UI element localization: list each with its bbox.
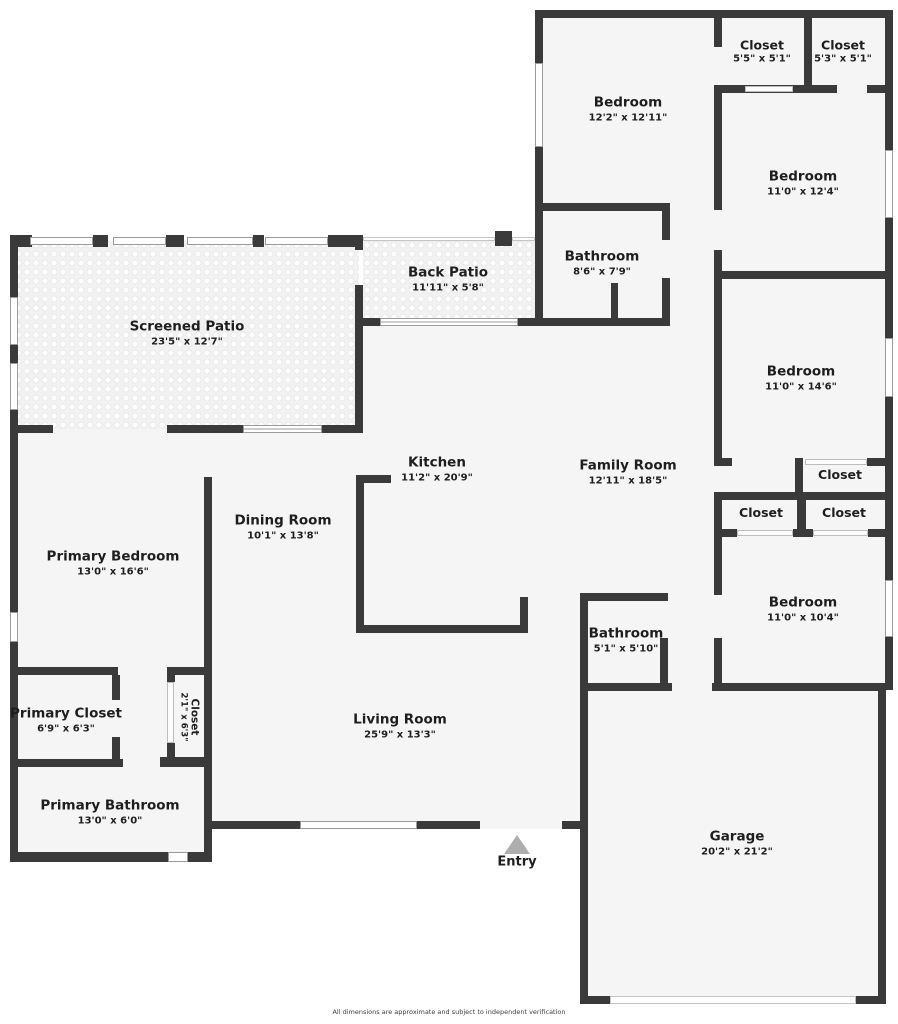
wall-segment bbox=[714, 638, 722, 686]
wall-segment bbox=[804, 10, 812, 88]
wall-segment bbox=[714, 458, 732, 466]
room-label-bedroom-right-3: Bedroom11'0" x 10'4" bbox=[767, 596, 839, 625]
wall-segment bbox=[885, 10, 893, 150]
patio-edge-line bbox=[363, 237, 495, 241]
wall-segment bbox=[562, 821, 583, 829]
wall-segment bbox=[867, 458, 893, 466]
wall-segment bbox=[868, 529, 893, 537]
room-label-closet-mid-top: Closet bbox=[818, 468, 862, 482]
patio-post bbox=[166, 235, 184, 247]
wall-segment bbox=[535, 10, 543, 63]
wall-segment bbox=[417, 821, 480, 829]
room-label-closet-top-2: Closet5'3" x 5'1" bbox=[814, 38, 872, 65]
room-label-screened-patio: Screened Patio23'5" x 12'7" bbox=[130, 320, 245, 349]
wall-segment bbox=[212, 821, 300, 829]
patio-post bbox=[10, 235, 32, 247]
room-label-primary-bathroom: Primary Bathroom13'0" x 6'0" bbox=[40, 799, 179, 828]
floor-kitchen-family bbox=[359, 322, 718, 429]
wall-segment bbox=[867, 85, 893, 93]
closet-door bbox=[745, 86, 793, 92]
screen-panel bbox=[265, 237, 328, 245]
wall-segment bbox=[518, 318, 670, 326]
room-label-bedroom-right-1: Bedroom11'0" x 12'4" bbox=[767, 170, 839, 199]
wall-segment bbox=[167, 675, 175, 682]
disclaimer-text: All dimensions are approximate and subje… bbox=[0, 1008, 898, 1016]
room-label-bedroom-right-2: Bedroom11'0" x 14'6" bbox=[765, 365, 837, 394]
sliding-door bbox=[243, 425, 322, 433]
wall-segment bbox=[322, 425, 363, 433]
screen-panel bbox=[187, 237, 253, 245]
wall-segment bbox=[722, 271, 893, 279]
room-label-bathroom-main: Bathroom8'6" x 7'9" bbox=[565, 250, 640, 279]
wall-segment bbox=[355, 237, 363, 250]
sliding-door bbox=[380, 318, 518, 326]
screen-panel bbox=[30, 237, 93, 245]
patio-edge-line bbox=[512, 237, 535, 241]
room-label-back-patio: Back Patio11'11" x 5'8" bbox=[408, 266, 488, 295]
room-label-kitchen: Kitchen11'2" x 20'9" bbox=[401, 456, 473, 485]
closet-door bbox=[737, 530, 793, 536]
wall-segment bbox=[10, 410, 18, 612]
window bbox=[300, 821, 417, 829]
room-label-primary-closet: Primary Closet6'9" x 6'3" bbox=[10, 707, 122, 736]
room-label-garage: Garage20'2" x 21'2" bbox=[701, 830, 773, 859]
window bbox=[10, 612, 18, 642]
wall-segment bbox=[355, 285, 363, 433]
room-label-living-room: Living Room25'9" x 13'3" bbox=[353, 713, 447, 742]
floor-plan: Bedroom12'2" x 12'11" Closet5'5" x 5'1" … bbox=[0, 0, 898, 1024]
wall-segment bbox=[712, 683, 886, 691]
patio-post bbox=[495, 231, 512, 246]
wall-segment bbox=[714, 92, 722, 210]
wall-segment bbox=[10, 345, 18, 363]
wall-segment bbox=[535, 203, 670, 211]
kitchen-counter-wall bbox=[356, 625, 528, 633]
window bbox=[535, 63, 543, 147]
wall-segment bbox=[583, 593, 668, 601]
garage-door bbox=[610, 996, 856, 1004]
window bbox=[885, 150, 893, 218]
wall-segment bbox=[167, 425, 243, 433]
wall-segment bbox=[167, 667, 212, 675]
wall-segment bbox=[793, 529, 813, 537]
room-label-bathroom-small: Bathroom5'1" x 5'10" bbox=[589, 627, 664, 656]
wall-segment bbox=[580, 683, 672, 691]
wall-segment bbox=[10, 642, 18, 862]
wall-segment bbox=[878, 683, 886, 1004]
screen-panel bbox=[10, 363, 18, 410]
room-label-closet-top-1: Closet5'5" x 5'1" bbox=[733, 38, 791, 65]
room-label-dining-room: Dining Room10'1" x 13'8" bbox=[234, 514, 331, 543]
wall-segment bbox=[662, 205, 670, 240]
kitchen-counter-wall bbox=[356, 475, 364, 633]
wall-segment bbox=[580, 996, 610, 1004]
wall-segment bbox=[535, 147, 543, 325]
wall-segment bbox=[714, 500, 722, 595]
wall-segment bbox=[580, 593, 588, 1004]
wall-segment bbox=[160, 757, 212, 767]
wall-segment bbox=[714, 277, 722, 466]
screen-panel bbox=[10, 297, 18, 345]
room-label-family-room: Family Room12'11" x 18'5" bbox=[579, 459, 676, 488]
room-label-bedroom-top: Bedroom12'2" x 12'11" bbox=[589, 96, 668, 125]
wall-segment bbox=[885, 637, 893, 690]
room-label-closet-mid-left: Closet bbox=[739, 506, 783, 520]
closet-door bbox=[167, 682, 174, 743]
window bbox=[885, 338, 893, 397]
wall-segment bbox=[885, 397, 893, 580]
wall-segment bbox=[714, 10, 722, 47]
wall-segment bbox=[10, 667, 118, 675]
kitchen-counter-wall bbox=[520, 597, 528, 633]
wall-segment bbox=[112, 737, 120, 759]
window bbox=[885, 580, 893, 637]
closet-door bbox=[805, 459, 867, 465]
wall-segment bbox=[10, 425, 53, 433]
wall-segment bbox=[112, 675, 120, 700]
room-label-closet-mid-right: Closet bbox=[822, 506, 866, 520]
wall-segment bbox=[714, 250, 722, 279]
room-label-primary-bedroom: Primary Bedroom13'0" x 16'6" bbox=[47, 550, 180, 579]
wall-segment bbox=[10, 852, 168, 862]
room-label-closet-linen: Closet2'1" x 6'3" bbox=[177, 692, 200, 741]
wall-segment bbox=[355, 318, 380, 326]
wall-segment bbox=[10, 759, 123, 767]
screen-panel bbox=[113, 237, 166, 245]
wall-segment bbox=[856, 996, 886, 1004]
entry-label: Entry bbox=[497, 855, 536, 870]
closet-door bbox=[813, 530, 868, 536]
entry-arrow-icon bbox=[504, 835, 530, 854]
window bbox=[168, 852, 188, 862]
patio-post bbox=[253, 235, 264, 247]
patio-post bbox=[93, 235, 108, 247]
